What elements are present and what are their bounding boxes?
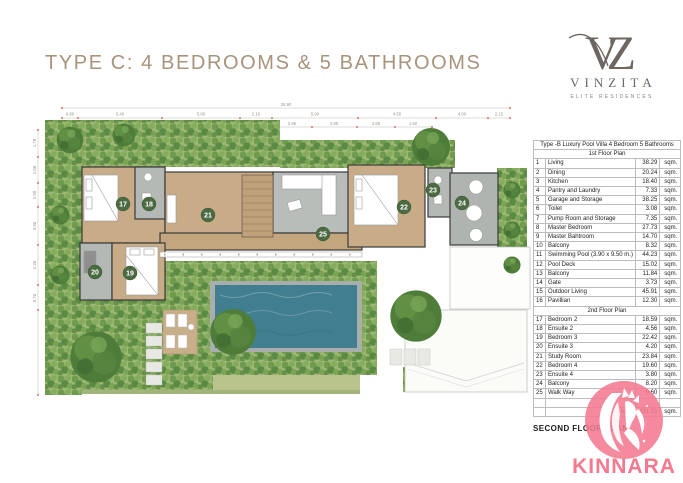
room-badge: 17 (116, 197, 130, 211)
svg-text:0.70: 0.70 (32, 293, 37, 302)
svg-text:4.50: 4.50 (393, 112, 402, 117)
tree-icon (503, 221, 520, 238)
room-badge: 24 (455, 196, 469, 210)
svg-text:2.65: 2.65 (372, 121, 381, 126)
vinzita-logo: VZ VINZITA ELITE RESIDENCES (553, 22, 669, 100)
svg-text:2.20: 2.20 (32, 260, 37, 269)
table-row: 6Toilet3.08sqm. (534, 205, 681, 214)
svg-text:2.15: 2.15 (495, 112, 504, 117)
svg-text:1.08: 1.08 (32, 165, 37, 174)
table-row: 12Pool Deck15.02sqm. (534, 260, 681, 269)
svg-text:24: 24 (458, 201, 466, 208)
table-row: 21Study Room23.84sqm. (534, 352, 681, 361)
table-row: 2Dining20.24sqm. (534, 168, 681, 177)
room-badge: 21 (201, 208, 215, 222)
tree-icon (412, 128, 450, 166)
svg-text:2.95: 2.95 (288, 121, 297, 126)
room-badge: 23 (426, 183, 440, 197)
room-badge: 18 (142, 197, 156, 211)
svg-text:4.00: 4.00 (458, 112, 467, 117)
table-row: 20Ensuite 34.20sqm. (534, 343, 681, 352)
table-row: 22Bedroom 419.60sqm. (534, 361, 681, 370)
balcony-rail (160, 252, 362, 257)
table-row: 15Outdoor Living45.91sqm. (534, 288, 681, 297)
sun-deck (163, 310, 197, 354)
table-row: 5Garage and Storage38.25sqm. (534, 196, 681, 205)
table-row: 9Master Bahtroom14.70sqm. (534, 233, 681, 242)
page-title: TYPE C: 4 BEDROOMS & 5 BATHROOMS (45, 52, 481, 75)
table-row: 10Balcony8.32sqm. (534, 242, 681, 251)
table-title-row: Type -B Luxury Pool Villa 4 Bedroom 5 Ba… (534, 141, 681, 150)
table-row: 1Living38.29sqm. (534, 159, 681, 168)
table-section-row: 1st Floor Plan (534, 150, 681, 159)
kinnara-logo-icon (584, 380, 664, 460)
svg-text:21: 21 (204, 213, 212, 220)
table-title: Type -B Luxury Pool Villa 4 Bedroom 5 Ba… (534, 141, 681, 150)
svg-text:0.80: 0.80 (66, 112, 75, 117)
svg-text:17: 17 (119, 202, 127, 209)
table-row: 17Bedroom 218.59sqm. (534, 315, 681, 324)
room-badge: 25 (316, 227, 330, 241)
room-badge: 22 (397, 200, 411, 214)
tree-icon (70, 331, 121, 382)
svg-text:20: 20 (91, 270, 99, 277)
svg-text:22: 22 (400, 205, 408, 212)
tree-icon (51, 206, 70, 225)
svg-text:2.95: 2.95 (330, 121, 339, 126)
tree-icon (113, 124, 136, 147)
table-row: 7Pump Room and Storage7.35sqm. (534, 214, 681, 223)
table-row: 3Kitchen18.40sqm. (534, 177, 681, 186)
svg-text:3.50: 3.50 (32, 221, 37, 230)
svg-text:2.10: 2.10 (252, 112, 261, 117)
room-badge: 20 (88, 265, 102, 279)
dim-total-label: 26.90 (281, 102, 292, 107)
table-row: 19Bedroom 322.42sqm. (534, 334, 681, 343)
svg-text:1.50: 1.50 (32, 190, 37, 199)
svg-text:5.00: 5.00 (197, 112, 206, 117)
kinnara-wordmark: KINNARA (566, 455, 682, 479)
kinnara-watermark: KINNARA (566, 380, 682, 479)
tree-icon (503, 256, 520, 273)
brand-name: VINZITA (553, 75, 669, 91)
svg-text:5.90: 5.90 (311, 112, 320, 117)
area-table-body: 1st Floor Plan1Living38.29sqm.2Dining20.… (534, 150, 681, 417)
monogram-text: VZ (585, 27, 634, 74)
svg-text:5.40: 5.40 (116, 112, 125, 117)
table-section-row: 2nd Floor Plan (534, 306, 681, 315)
svg-text:1.78: 1.78 (32, 138, 37, 147)
tree-icon (210, 309, 256, 355)
table-row: 4Pantry and Laundry7.33sqm. (534, 187, 681, 196)
room-badge: 19 (123, 266, 137, 280)
table-row: 8Master Bedroom27.73sqm. (534, 223, 681, 232)
table-row: 16Pavillian12.30sqm. (534, 297, 681, 306)
svg-text:23: 23 (429, 188, 437, 195)
table-row: 13Balcony11.84sqm. (534, 269, 681, 278)
svg-text:18: 18 (145, 202, 153, 209)
brochure-page: TYPE C: 4 BEDROOMS & 5 BATHROOMS VZ VINZ… (0, 0, 683, 483)
table-row: 14Gate3.73sqm. (534, 279, 681, 288)
vinzita-monogram-icon: VZ (563, 22, 659, 74)
tree-icon (57, 127, 84, 154)
svg-text:1.60: 1.60 (409, 121, 418, 126)
tree-icon (51, 266, 70, 285)
tree-icon (503, 181, 520, 198)
table-row: 18Ensuite 24.56sqm. (534, 325, 681, 334)
table-row: 11Swimming Pool (3.90 x 9.50 m.)44.23sqm… (534, 251, 681, 260)
floor-plan-drawing: 26.90 0.80 5.40 5.00 2.10 5.90 4.50 4.00… (30, 95, 535, 440)
area-table: Type -B Luxury Pool Villa 4 Bedroom 5 Ba… (533, 140, 681, 417)
table-row: 23Ensuite 43.80sqm. (534, 371, 681, 380)
tree-icon (390, 290, 441, 341)
svg-text:25: 25 (319, 232, 327, 239)
svg-text:19: 19 (126, 271, 134, 278)
stairs (242, 175, 273, 237)
brand-tagline: ELITE RESIDENCES (553, 94, 669, 100)
